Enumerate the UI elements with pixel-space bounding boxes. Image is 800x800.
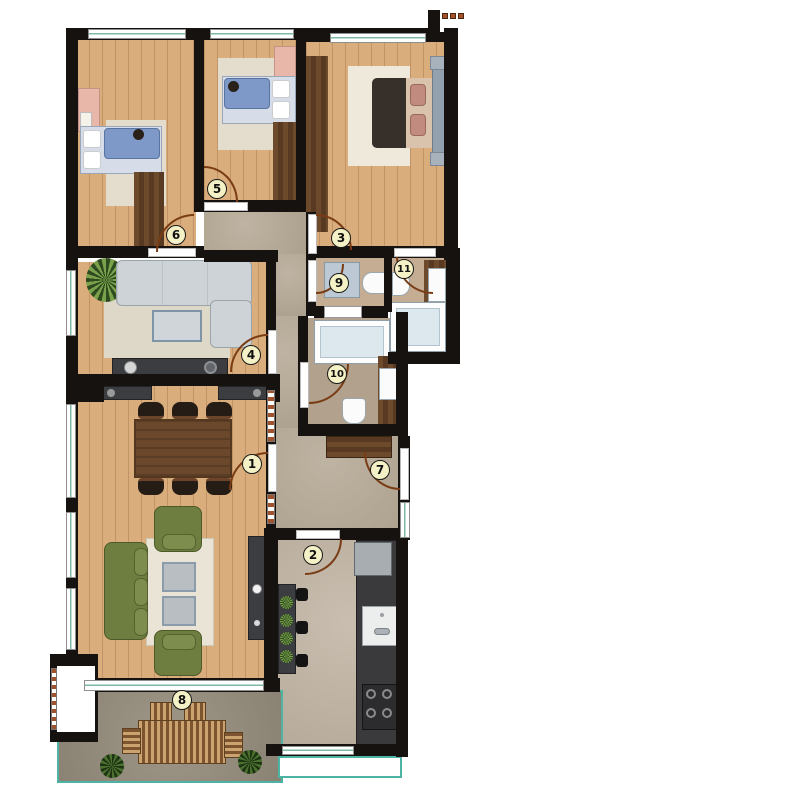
- window: [66, 270, 76, 336]
- bar-stool: [296, 654, 308, 667]
- bedroom-1-person-head: [133, 129, 144, 140]
- bar-sink-icon: [252, 584, 262, 594]
- side-table-2: [162, 596, 196, 626]
- faucet-icon: [374, 628, 390, 635]
- bathroom-10-sink: [379, 368, 397, 400]
- bar-plant-icon: [280, 632, 293, 645]
- dining-chair: [138, 402, 164, 419]
- burner-icon: [382, 689, 392, 699]
- vent-block: [442, 13, 448, 19]
- window: [88, 29, 186, 39]
- balcony-chair: [150, 702, 172, 721]
- doorway-2: [296, 530, 340, 539]
- window: [66, 404, 76, 498]
- kitchen-balcony-strip: [278, 756, 402, 778]
- floor-plan: 1234567891011: [0, 0, 800, 800]
- balcony-chair: [122, 728, 141, 754]
- hall-vertical-floor: [276, 254, 306, 318]
- wall: [194, 28, 204, 212]
- burner-icon: [382, 708, 392, 718]
- window: [400, 502, 410, 538]
- wall: [298, 424, 408, 436]
- balcony-table: [138, 720, 226, 764]
- bar-plant-icon: [280, 614, 293, 627]
- knob-icon: [204, 361, 217, 374]
- sink-drain-icon: [380, 613, 384, 617]
- wall: [444, 28, 458, 260]
- balcony-slider-window: [84, 680, 264, 691]
- wall: [446, 248, 460, 364]
- bedroom-1-pillow-2: [83, 151, 101, 169]
- bedroom-3-pillow-2: [410, 114, 426, 136]
- balcony-plant-icon: [238, 750, 262, 774]
- wall: [296, 28, 306, 212]
- doorway-7: [400, 448, 409, 500]
- wall: [396, 312, 408, 436]
- window: [66, 512, 76, 578]
- burner-icon: [366, 689, 376, 699]
- green-sofa-cushion: [134, 578, 148, 606]
- doorway-4: [268, 330, 277, 374]
- window: [330, 33, 426, 43]
- sliding-panel-hatch: [267, 390, 275, 442]
- cabinet-knob-icon-2: [253, 389, 261, 397]
- shaft-void: [57, 666, 95, 732]
- bedroom-1-blanket: [104, 128, 160, 159]
- balcony-chair: [184, 702, 206, 721]
- bathroom-10-toilet: [342, 398, 366, 424]
- doorway-1: [268, 444, 277, 492]
- green-sofa-cushion: [134, 548, 148, 576]
- dining-chair: [138, 478, 164, 495]
- dining-chair: [172, 402, 198, 419]
- green-armchair-cushion: [162, 634, 196, 650]
- side-table: [162, 562, 196, 592]
- bar-stool: [296, 588, 308, 601]
- dining-chair: [172, 478, 198, 495]
- shaft-hatch: [51, 668, 57, 730]
- bar-plant-icon: [280, 650, 293, 663]
- speaker-icon: [124, 361, 137, 374]
- kitchen-sink: [362, 606, 398, 646]
- bar-plant-icon: [280, 596, 293, 609]
- green-sofa-cushion: [134, 608, 148, 636]
- sliding-panel-hatch: [267, 494, 275, 524]
- doorway-5: [204, 202, 248, 211]
- wc-9-sink: [362, 272, 386, 294]
- vent-block: [458, 13, 464, 19]
- window: [210, 29, 294, 39]
- bedroom-2-person-head: [228, 81, 239, 92]
- bedroom-3-wardrobe: [306, 56, 328, 232]
- window: [66, 588, 76, 650]
- kitchen-window: [282, 746, 354, 755]
- wall: [66, 374, 104, 402]
- bedroom-3-pillow: [410, 84, 426, 106]
- dining-table: [134, 419, 232, 478]
- duct-void: [324, 306, 362, 318]
- wall-chimney: [428, 10, 440, 30]
- wall: [384, 254, 392, 312]
- bedroom-2-wardrobe: [273, 122, 297, 208]
- balcony-plant-icon: [100, 754, 124, 778]
- bar-knob-icon: [254, 620, 260, 626]
- bedroom-3-duvet: [372, 78, 406, 148]
- wall: [396, 540, 408, 757]
- doorway-10: [300, 362, 309, 408]
- cabinet-knob-icon: [107, 389, 115, 397]
- bedroom-1-pillow: [83, 130, 101, 148]
- bar-stool: [296, 621, 308, 634]
- bedroom-2-pillow: [272, 80, 290, 98]
- corridor-floor: [204, 212, 306, 254]
- doorway-11: [394, 248, 436, 257]
- fridge: [354, 542, 392, 576]
- green-armchair-cushion: [162, 534, 196, 550]
- bedroom-2-pillow-2: [272, 101, 290, 119]
- bathroom-10-bathtub-basin: [320, 326, 384, 358]
- vent-block: [450, 13, 456, 19]
- burner-icon: [366, 708, 376, 718]
- dining-chair: [206, 402, 232, 419]
- coffee-table: [152, 310, 202, 342]
- wall: [264, 528, 278, 692]
